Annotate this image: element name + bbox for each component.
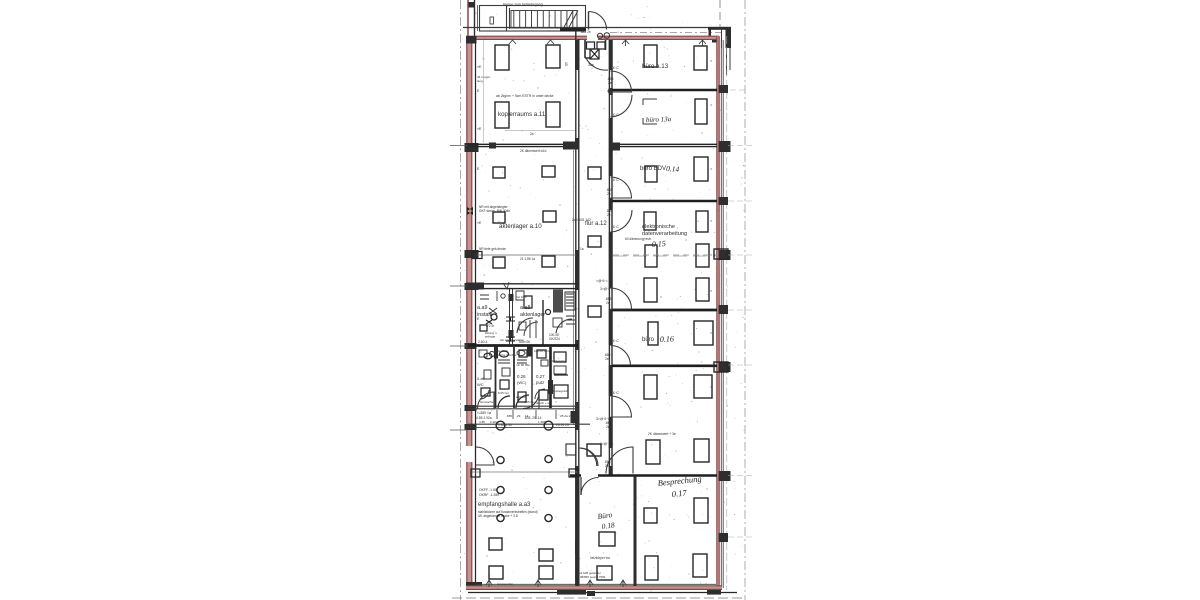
svg-text:büro 13a: büro 13a bbox=[646, 115, 672, 124]
svg-text:mb 06 05a: mb 06 05a bbox=[516, 363, 530, 367]
svg-text:büro EDV: büro EDV bbox=[640, 166, 666, 172]
svg-text:2a: 2a bbox=[530, 132, 534, 136]
svg-text:£·C: £·C bbox=[613, 66, 619, 70]
svg-text:2e: 2e bbox=[606, 301, 610, 305]
svg-text:GKF decke, RW 30db: GKF decke, RW 30db bbox=[479, 209, 510, 213]
svg-text:1.85 1.35: 1.85 1.35 bbox=[498, 423, 512, 427]
svg-text:2e: 2e bbox=[606, 425, 610, 429]
svg-text:fernwache: fernwache bbox=[480, 400, 494, 404]
svg-text:100.06 GK/2a: 100.06 GK/2a bbox=[534, 349, 552, 353]
svg-text:1.305: 1.305 bbox=[538, 420, 546, 424]
svg-text:wache 1 hüfspr.: wache 1 hüfspr. bbox=[497, 353, 517, 357]
svg-text:2K dämmwert + 3e: 2K dämmwert + 3e bbox=[648, 432, 676, 436]
svg-text:2.60-4: 2.60-4 bbox=[478, 340, 488, 344]
svg-text:0.17: 0.17 bbox=[671, 487, 688, 499]
svg-text:heizkörper vor: heizkörper vor bbox=[590, 556, 611, 560]
svg-text:0.26: 0.26 bbox=[517, 374, 526, 379]
svg-text:anfrage: anfrage bbox=[485, 335, 496, 339]
svg-text:aktenlager: aktenlager bbox=[520, 312, 545, 318]
svg-text:bst 10/6: bst 10/6 bbox=[516, 295, 527, 299]
svg-text:WC: WC bbox=[477, 382, 484, 387]
svg-text:RA 38/865 sound 7081: RA 38/865 sound 7081 bbox=[575, 575, 606, 579]
svg-text:aktenlager a.10: aktenlager a.10 bbox=[499, 223, 542, 230]
svg-text:8.05 lw-t: 8.05 lw-t bbox=[498, 391, 510, 395]
svg-text:72 4r: 72 4r bbox=[487, 324, 495, 328]
svg-text:.14: .14 bbox=[524, 414, 529, 418]
svg-text:£·C: £·C bbox=[613, 178, 619, 182]
svg-text:2e: 2e bbox=[607, 213, 611, 217]
svg-text:60 dämmung+estr.: 60 dämmung+estr. bbox=[625, 237, 652, 241]
svg-text:luftbehafter: luftbehafter bbox=[552, 359, 567, 363]
svg-text:ab 2kg/m² + 5cm ESTR in unter: ab 2kg/m² + 5cm ESTR in unter decke bbox=[496, 94, 554, 98]
svg-text:6.05 6a-t: 6.05 6a-t bbox=[524, 400, 536, 404]
svg-text:dusch + wd: dusch + wd bbox=[536, 401, 552, 405]
svg-text:OKFF -1.50: OKFF -1.50 bbox=[479, 488, 497, 492]
svg-text:£·C: £·C bbox=[613, 113, 619, 117]
svg-text:25 24 25: 25 24 25 bbox=[556, 423, 569, 427]
svg-text:NR tiefe gek.decke: NR tiefe gek.decke bbox=[479, 247, 506, 251]
svg-text:35a: 35a bbox=[588, 63, 594, 67]
svg-text:2e: 2e bbox=[608, 81, 612, 85]
svg-text:4.85: 4.85 bbox=[479, 420, 485, 424]
svg-text:3>@·6·<: 3>@·6·< bbox=[600, 287, 613, 291]
svg-text:OKRF -1.285: OKRF -1.285 bbox=[479, 493, 499, 497]
svg-text:(WC): (WC) bbox=[517, 380, 527, 385]
svg-text:21 1.85 1a: 21 1.85 1a bbox=[520, 257, 535, 261]
svg-text:£·C: £·C bbox=[613, 391, 619, 395]
svg-text:£·C: £·C bbox=[613, 339, 619, 343]
svg-text:3>@·Y·<: 3>@·Y·< bbox=[600, 442, 614, 446]
svg-text:0.14: 0.14 bbox=[666, 164, 680, 174]
svg-text:elektronische: elektronische bbox=[642, 224, 675, 230]
svg-text:2K dämmwert w1b: 2K dämmwert w1b bbox=[520, 149, 547, 153]
svg-text:lang: lang bbox=[477, 79, 483, 83]
svg-text:1a: 1a bbox=[580, 247, 584, 251]
svg-text:a.a9: a.a9 bbox=[477, 305, 488, 311]
svg-text:treppe zum betriebsgang: treppe zum betriebsgang bbox=[503, 3, 543, 7]
svg-text:2a5 525 142: 2a5 525 142 bbox=[572, 218, 591, 222]
svg-text:aufputz: aufputz bbox=[516, 395, 526, 399]
svg-text:«E: «E bbox=[477, 65, 482, 69]
svg-text:.885 2e: .885 2e bbox=[580, 30, 591, 34]
svg-text:2e: 2e bbox=[605, 464, 609, 468]
svg-text:empfangshalle a.a3: empfangshalle a.a3 bbox=[478, 502, 531, 508]
svg-text:GK/224: GK/224 bbox=[549, 337, 560, 341]
svg-text:2.92a: 2.92a bbox=[490, 420, 498, 424]
svg-text:£·C: £·C bbox=[613, 225, 619, 229]
svg-text:.835: .835 bbox=[506, 414, 512, 418]
svg-text:2e: 2e bbox=[607, 192, 611, 196]
svg-text:15: 15 bbox=[564, 62, 568, 66]
svg-text:0.27: 0.27 bbox=[536, 374, 545, 379]
svg-text:>@·6·<: >@·6·< bbox=[596, 279, 608, 283]
svg-text:kopierraums a.11: kopierraums a.11 bbox=[498, 111, 546, 118]
svg-text:«E: «E bbox=[477, 127, 482, 131]
svg-text:2e: 2e bbox=[605, 357, 609, 361]
svg-text:3>@·6·<: 3>@·6·< bbox=[596, 417, 609, 421]
svg-text:0.16: 0.16 bbox=[660, 334, 674, 344]
svg-text:terrassentür: terrassentür bbox=[497, 582, 513, 586]
svg-text:putz: putz bbox=[536, 380, 544, 385]
svg-text:25 2a 25: 25 2a 25 bbox=[560, 414, 572, 418]
svg-text:0.15: 0.15 bbox=[652, 239, 667, 249]
svg-text:0.18: 0.18 bbox=[601, 520, 615, 531]
svg-text:m.spiegelstr.: m.spiegelstr. bbox=[552, 389, 568, 393]
svg-text:¼.885 ¼a: ¼.885 ¼a bbox=[477, 411, 491, 415]
svg-text:«E: «E bbox=[477, 221, 482, 225]
